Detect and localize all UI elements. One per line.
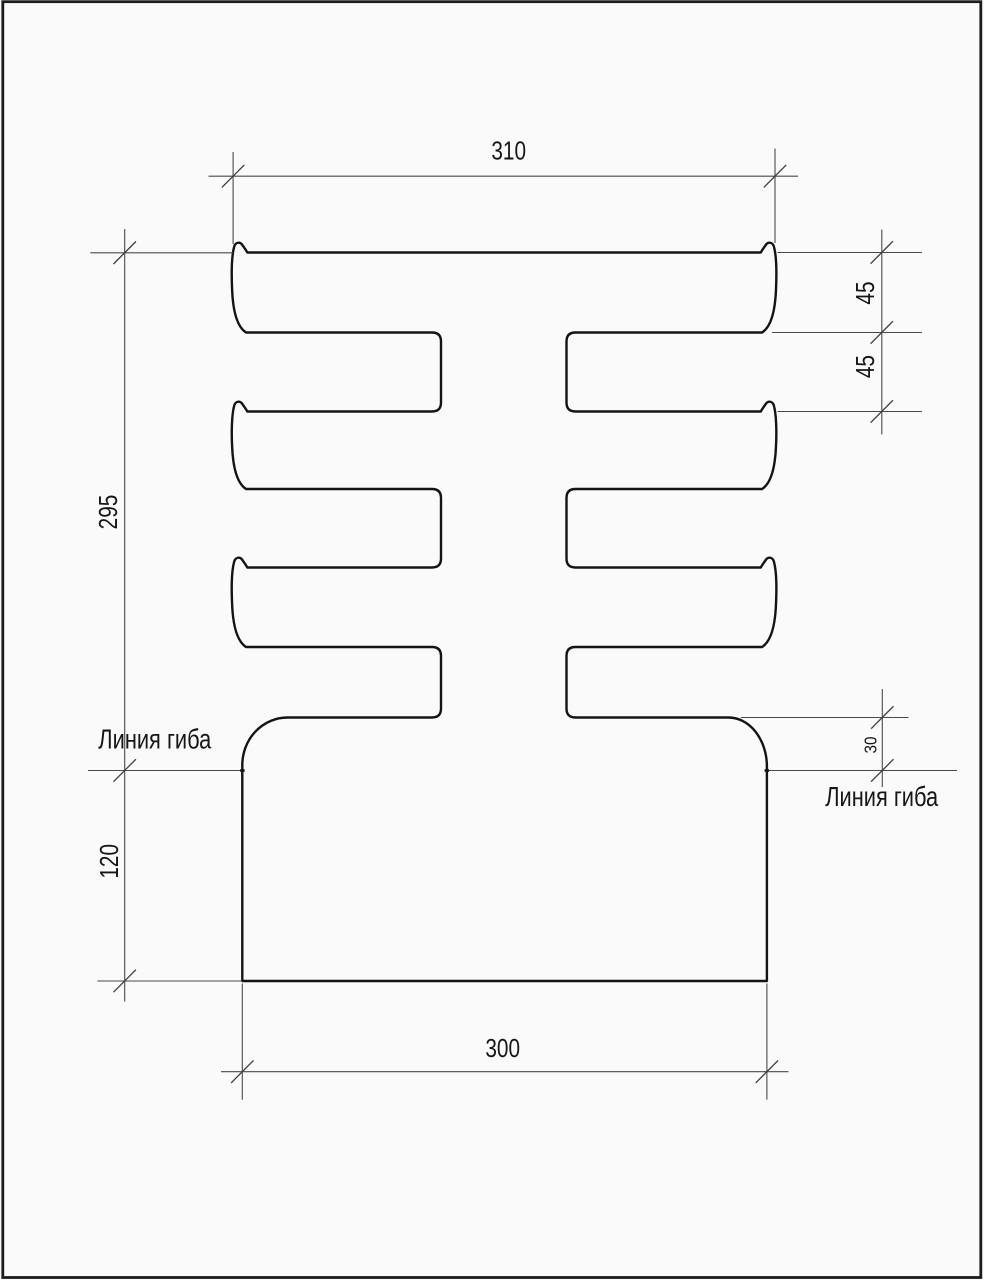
svg-text:120: 120: [95, 844, 124, 879]
svg-text:45: 45: [851, 281, 880, 304]
svg-text:300: 300: [485, 1034, 520, 1063]
svg-text:Линия гиба: Линия гиба: [825, 782, 938, 813]
svg-text:45: 45: [851, 355, 880, 378]
svg-text:295: 295: [94, 495, 123, 530]
svg-text:30: 30: [860, 736, 880, 753]
svg-text:Линия гиба: Линия гиба: [98, 724, 211, 755]
svg-text:310: 310: [491, 136, 526, 165]
